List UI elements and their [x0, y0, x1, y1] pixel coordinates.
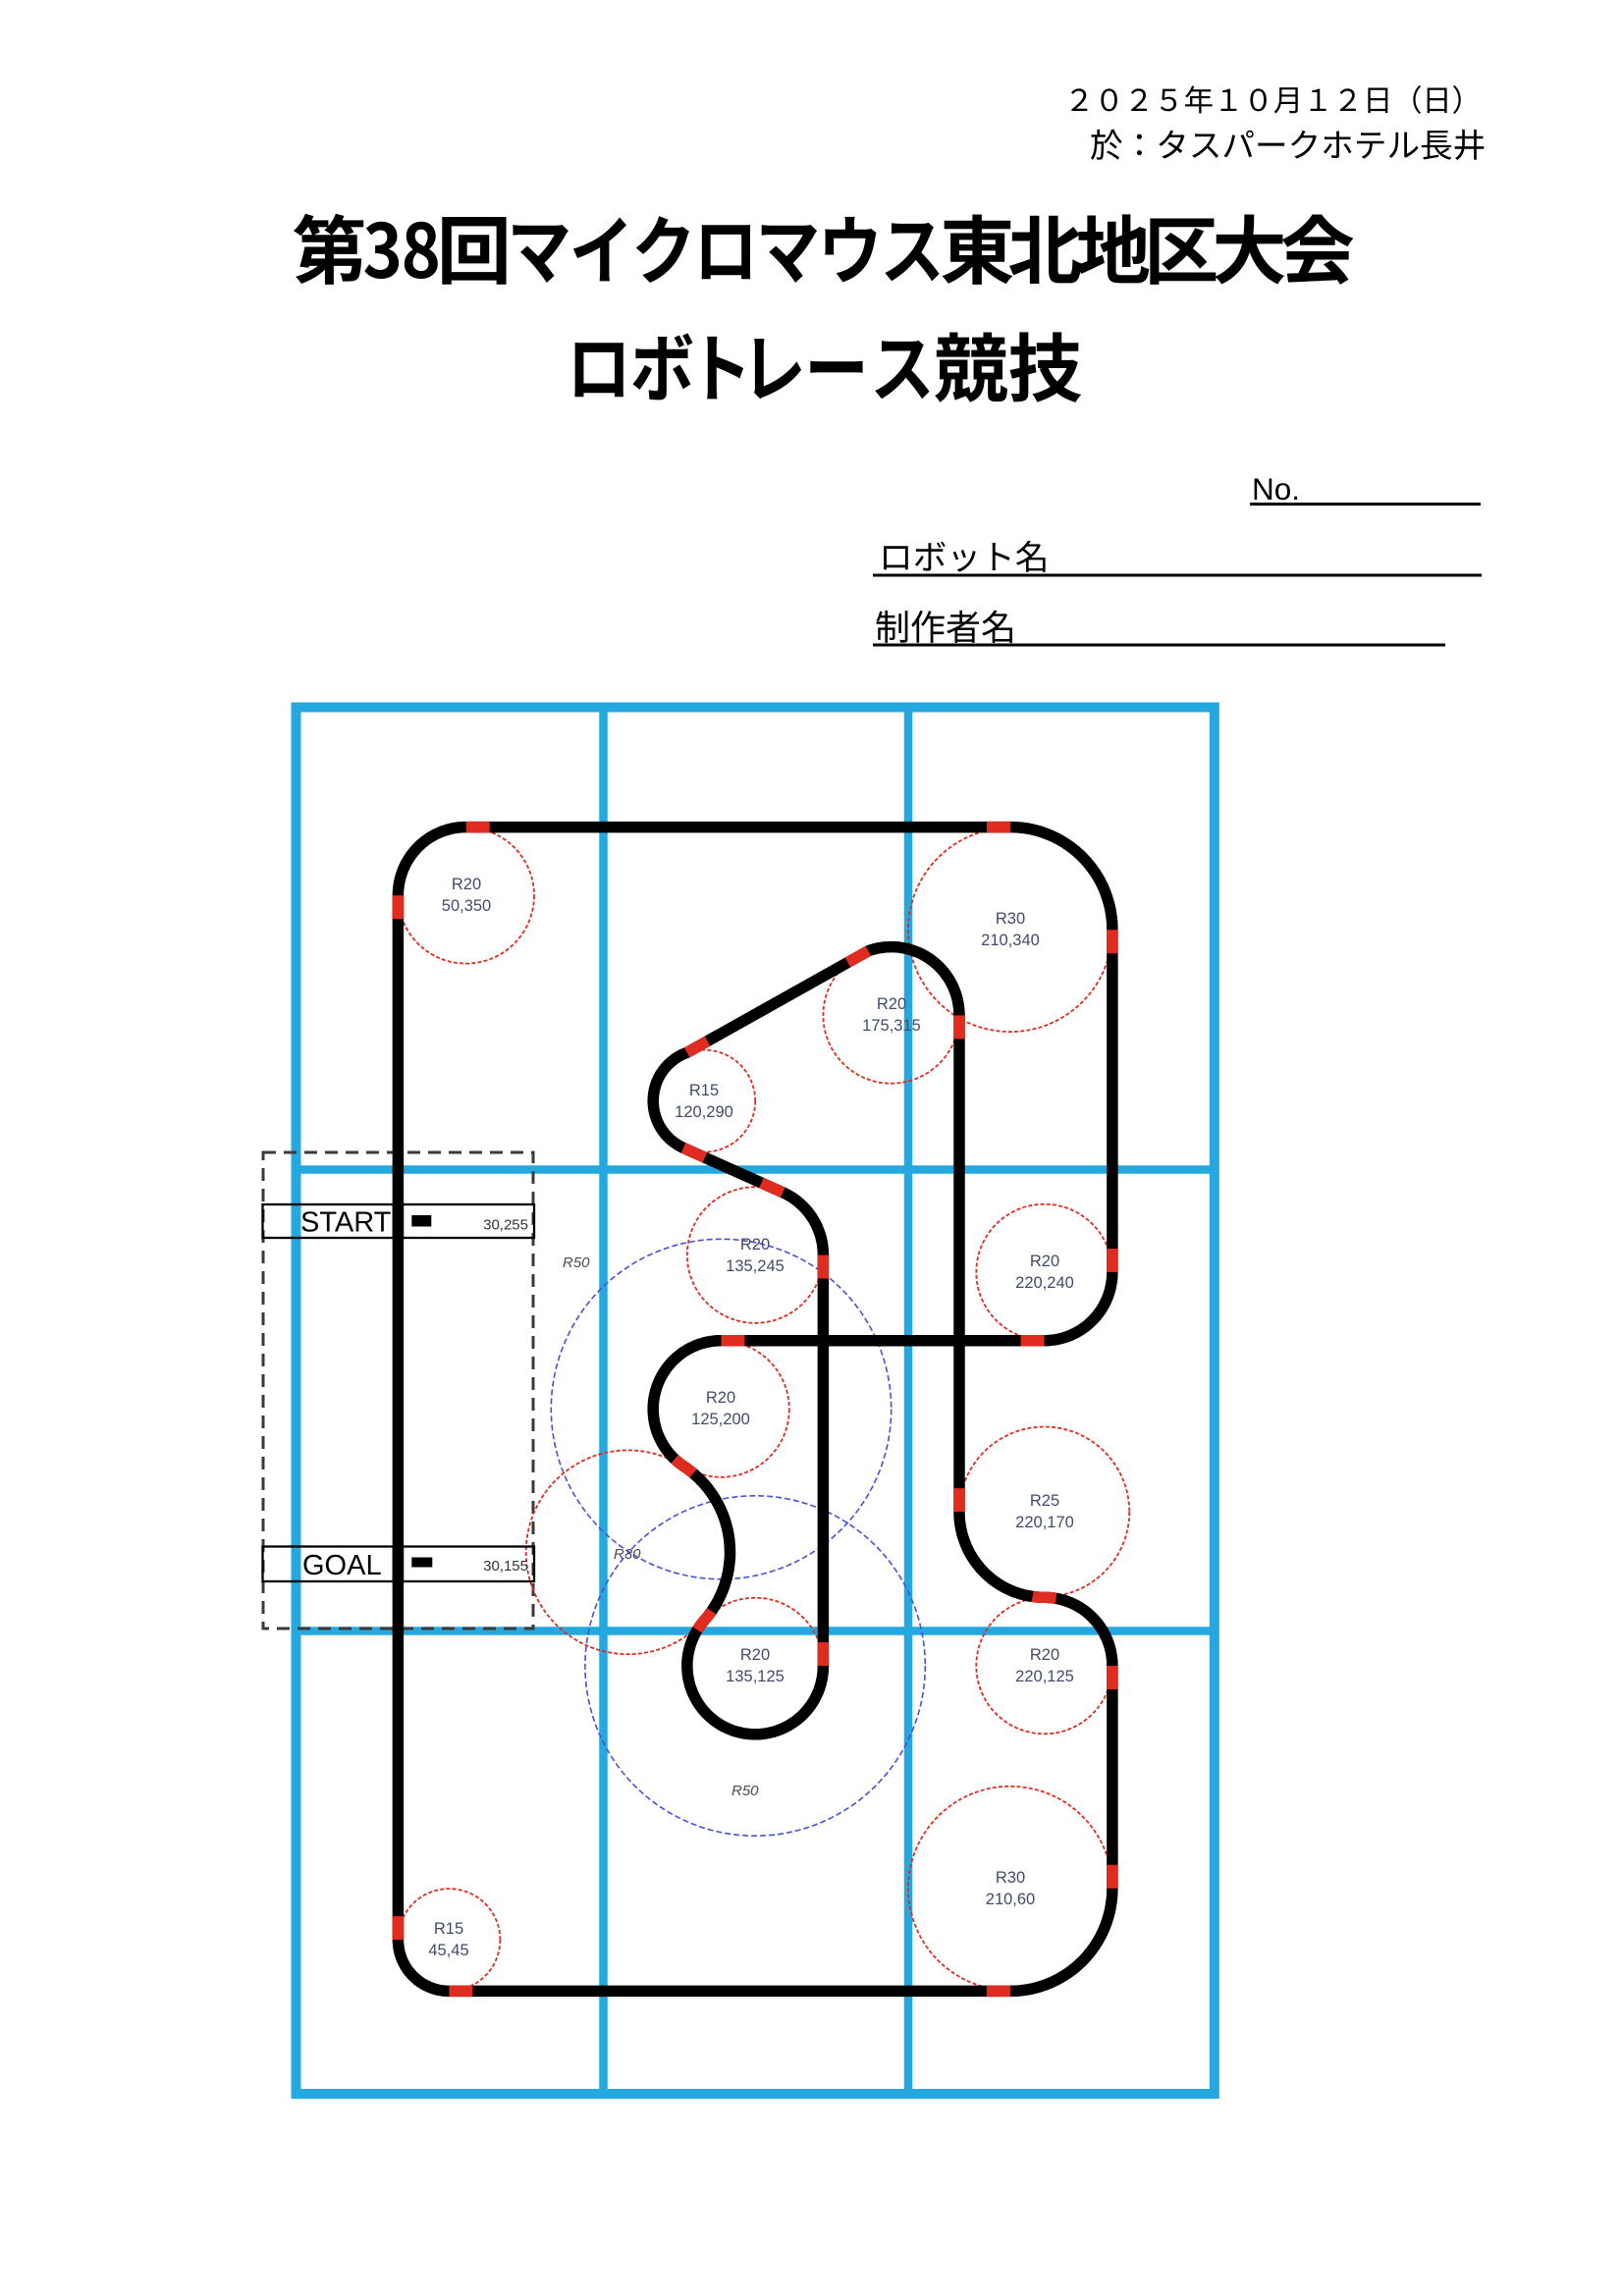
svg-text:30,155: 30,155: [483, 1558, 528, 1575]
svg-text:GOAL: GOAL: [302, 1550, 382, 1581]
svg-text:R50: R50: [731, 1783, 759, 1799]
svg-text:No.: No.: [1252, 471, 1300, 507]
svg-text:220,125: 220,125: [1015, 1668, 1074, 1685]
svg-text:210,340: 210,340: [981, 932, 1040, 949]
svg-text:R20: R20: [740, 1236, 770, 1254]
svg-text:120,290: 120,290: [675, 1103, 733, 1121]
svg-text:50,350: 50,350: [442, 897, 491, 915]
svg-text:R20: R20: [452, 876, 481, 893]
svg-text:R20: R20: [877, 995, 906, 1013]
svg-text:R20: R20: [706, 1389, 735, 1407]
svg-text:START: START: [300, 1207, 392, 1239]
svg-text:R50: R50: [563, 1255, 590, 1271]
svg-text:R15: R15: [434, 1920, 463, 1938]
svg-text:45,45: 45,45: [428, 1942, 468, 1959]
svg-text:R20: R20: [740, 1646, 770, 1664]
svg-text:210,60: 210,60: [986, 1891, 1035, 1908]
svg-text:R20: R20: [1030, 1646, 1059, 1664]
svg-text:175,315: 175,315: [862, 1017, 921, 1035]
svg-text:R30: R30: [614, 1546, 641, 1563]
svg-text:R15: R15: [689, 1082, 719, 1099]
svg-text:R30: R30: [996, 910, 1025, 928]
svg-text:220,170: 220,170: [1015, 1514, 1074, 1531]
svg-text:R30: R30: [996, 1869, 1025, 1887]
svg-text:30,255: 30,255: [483, 1217, 528, 1234]
svg-text:135,125: 135,125: [726, 1668, 785, 1685]
svg-text:R20: R20: [1030, 1253, 1059, 1270]
svg-text:135,245: 135,245: [726, 1257, 785, 1275]
svg-text:R25: R25: [1030, 1492, 1059, 1510]
svg-text:220,240: 220,240: [1015, 1274, 1074, 1292]
svg-text:125,200: 125,200: [691, 1411, 750, 1428]
